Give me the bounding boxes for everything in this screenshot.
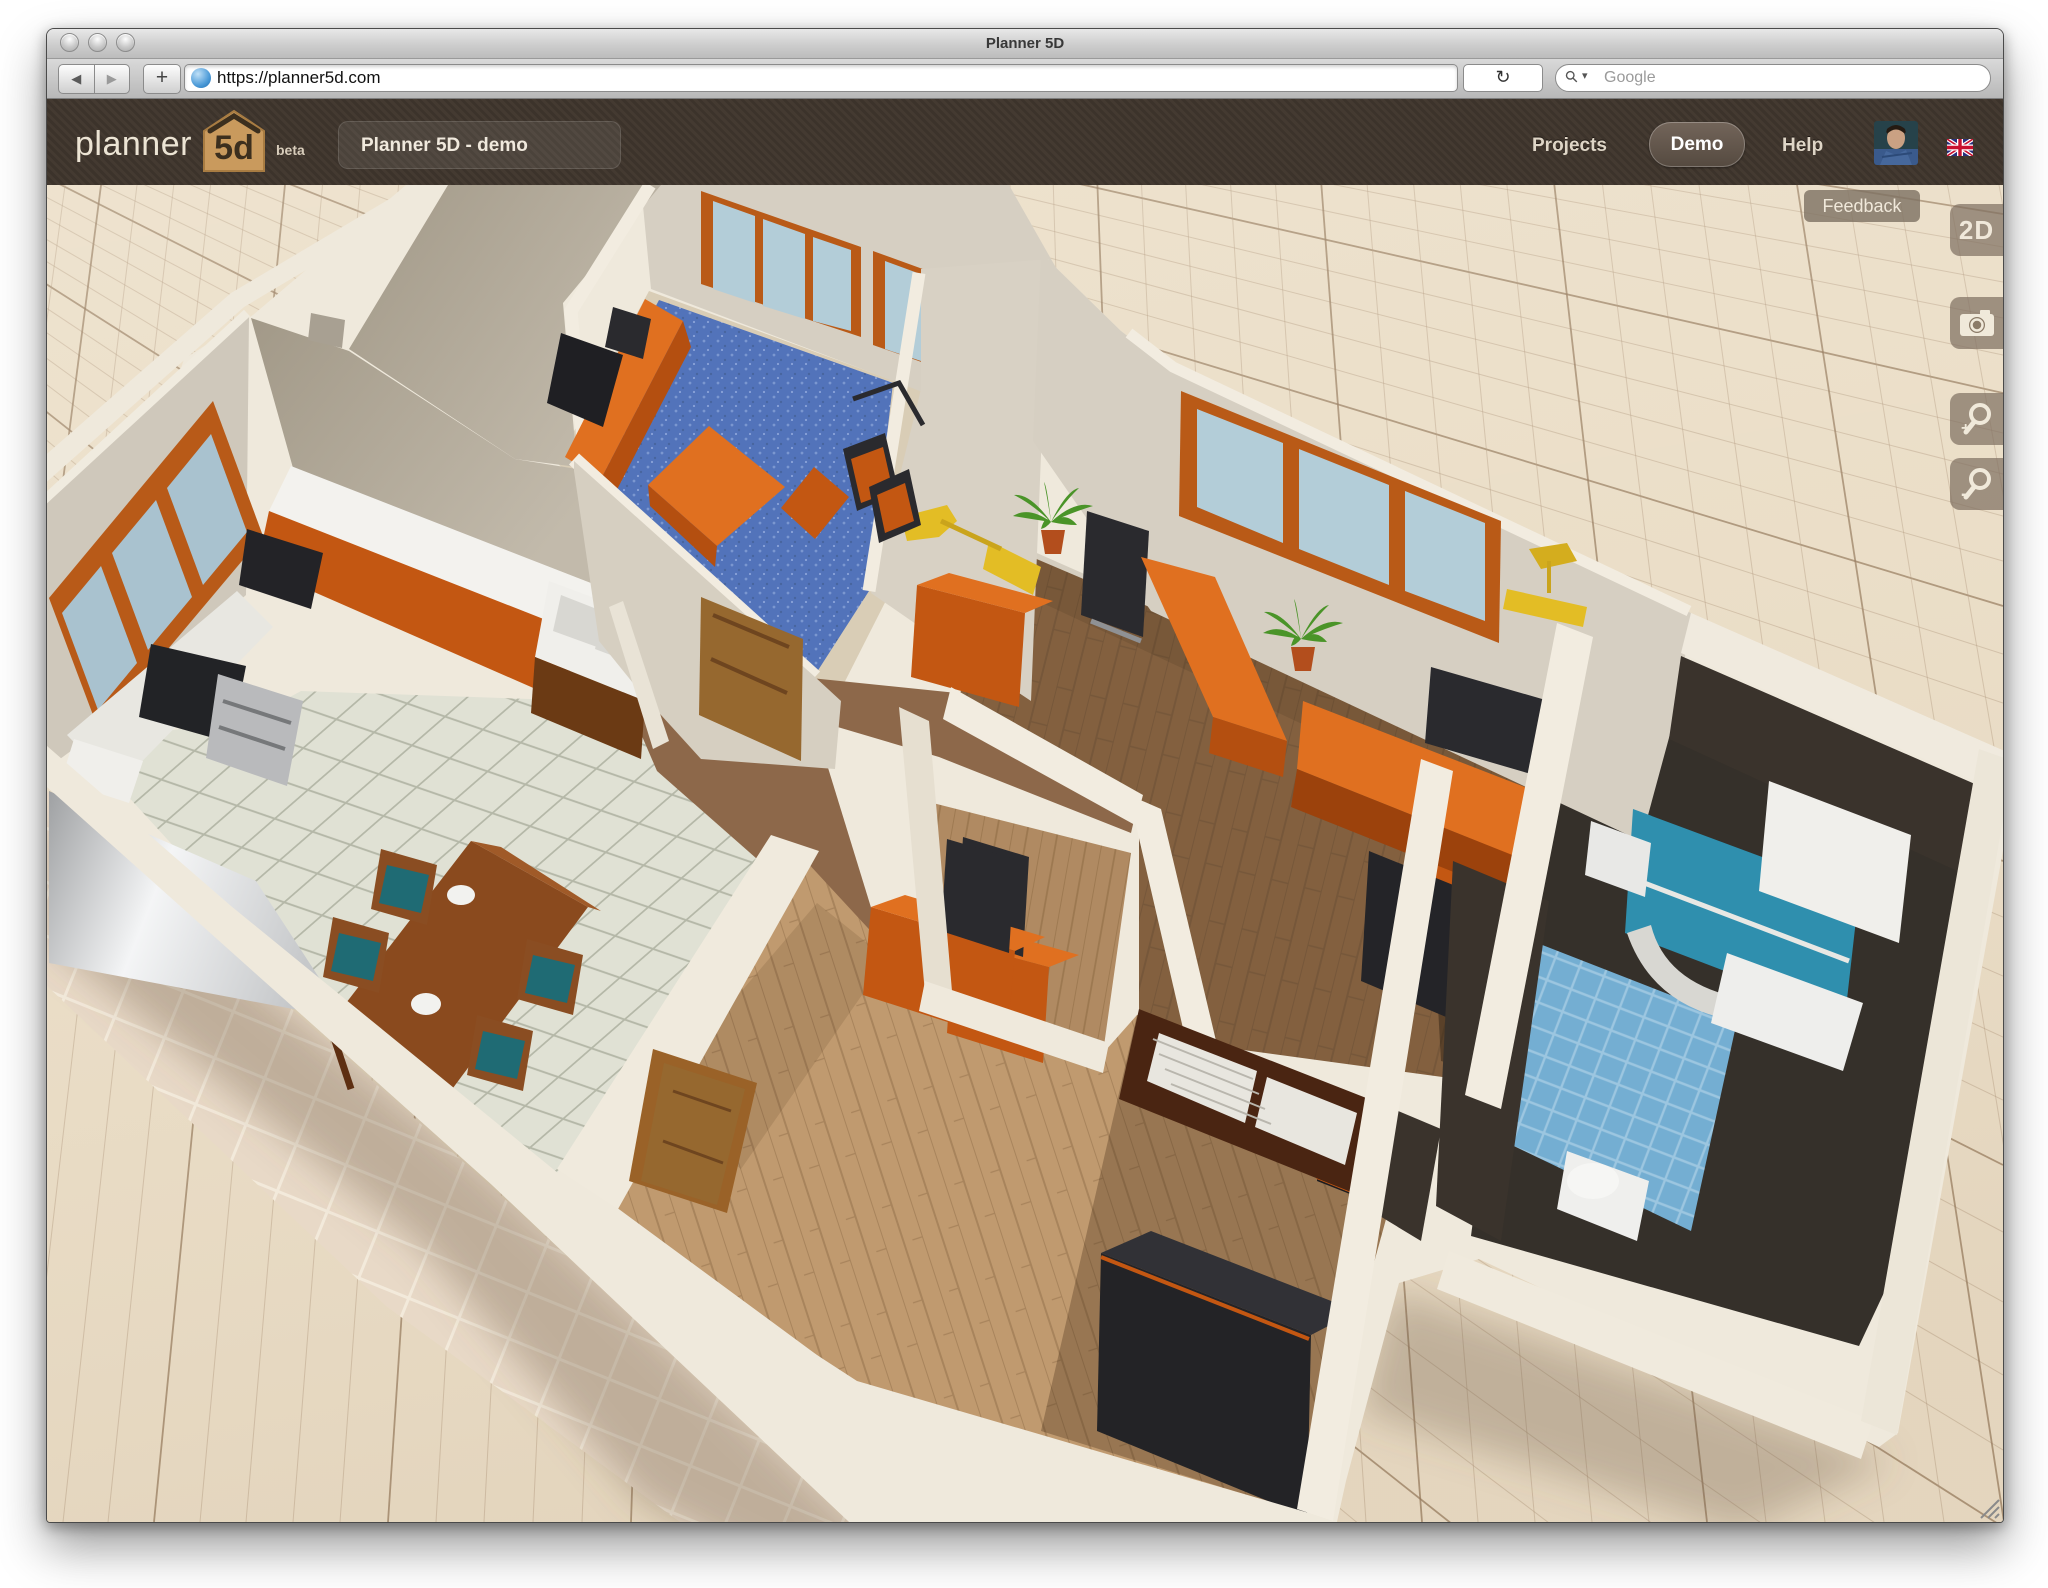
svg-text:5d: 5d xyxy=(214,129,254,167)
svg-text:-: - xyxy=(1961,483,1968,502)
svg-text:+: + xyxy=(1961,420,1970,437)
